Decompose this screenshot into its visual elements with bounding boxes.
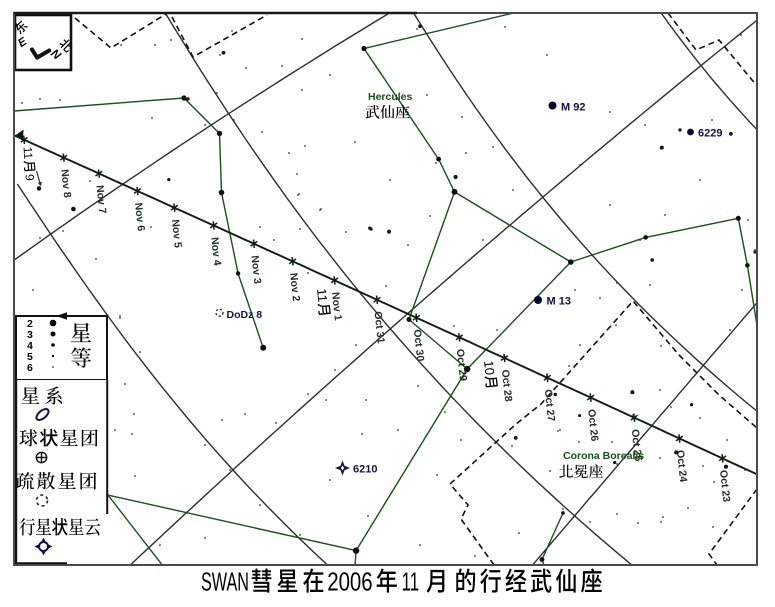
svg-text:M 13: M 13 xyxy=(547,296,571,308)
svg-text:2006: 2006 xyxy=(327,569,373,597)
svg-text:Corona Borealis: Corona Borealis xyxy=(563,450,644,462)
svg-text:M 92: M 92 xyxy=(561,102,585,114)
svg-text:11: 11 xyxy=(21,146,36,160)
svg-text:DoDz 8: DoDz 8 xyxy=(227,309,263,321)
svg-text:6210: 6210 xyxy=(353,464,377,476)
svg-text:9: 9 xyxy=(22,174,36,182)
svg-text:6: 6 xyxy=(27,362,33,374)
svg-text:11: 11 xyxy=(314,288,330,303)
svg-text:10: 10 xyxy=(481,360,497,376)
svg-text:SWAN: SWAN xyxy=(201,569,249,597)
svg-text:Hercules: Hercules xyxy=(368,91,413,103)
svg-text:6229: 6229 xyxy=(698,128,722,140)
svg-text:11: 11 xyxy=(402,569,420,597)
